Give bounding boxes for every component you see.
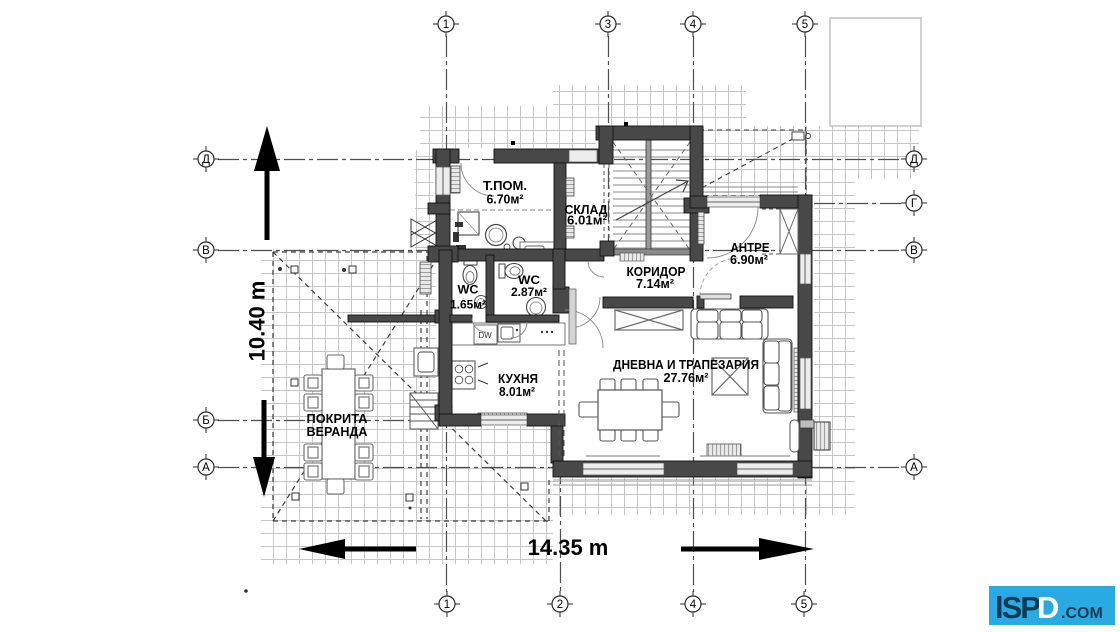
svg-text:5: 5	[802, 19, 808, 31]
svg-text:lSP: lSP	[995, 590, 1040, 625]
svg-text:Д: Д	[910, 154, 918, 166]
svg-text:7.14м²: 7.14м²	[636, 277, 674, 291]
svg-text:ВЕРАНДА: ВЕРАНДА	[307, 425, 368, 439]
svg-text:1.65м²: 1.65м²	[450, 298, 486, 312]
svg-text:6.90м²: 6.90м²	[730, 253, 768, 267]
svg-text:14.35 m: 14.35 m	[528, 535, 609, 560]
svg-text:КУХНЯ: КУХНЯ	[498, 371, 538, 386]
svg-text:А: А	[910, 462, 918, 474]
svg-text:ПОКРИТА: ПОКРИТА	[307, 412, 368, 426]
svg-text:10.40 m: 10.40 m	[245, 281, 270, 362]
svg-text:2: 2	[557, 599, 563, 611]
svg-text:5: 5	[801, 599, 807, 611]
svg-text:4: 4	[690, 19, 697, 31]
svg-text:6.70м²: 6.70м²	[487, 193, 524, 207]
svg-text:WC: WC	[458, 285, 479, 297]
svg-text:4: 4	[690, 599, 697, 611]
svg-text:6.01м²: 6.01м²	[567, 214, 607, 228]
svg-text:2.87м²: 2.87м²	[511, 285, 547, 299]
svg-text:8.01м²: 8.01м²	[499, 385, 535, 399]
svg-text:Д: Д	[202, 154, 210, 166]
svg-text:А: А	[202, 462, 210, 474]
svg-text:1: 1	[444, 599, 450, 611]
svg-text:1: 1	[443, 19, 449, 31]
svg-text:Г: Г	[911, 198, 918, 210]
svg-text:Т.ПОМ.: Т.ПОМ.	[483, 178, 527, 193]
svg-text:В: В	[202, 245, 210, 257]
svg-text:.COM: .COM	[1061, 605, 1103, 622]
svg-text:3: 3	[605, 19, 611, 31]
svg-text:В: В	[910, 245, 918, 257]
svg-text:ДНЕВНА И ТРАПЕЗАРИЯ: ДНЕВНА И ТРАПЕЗАРИЯ	[613, 357, 759, 372]
svg-text:D: D	[1037, 590, 1059, 625]
svg-text:Б: Б	[202, 415, 210, 427]
svg-text:27.76м²: 27.76м²	[664, 371, 709, 385]
